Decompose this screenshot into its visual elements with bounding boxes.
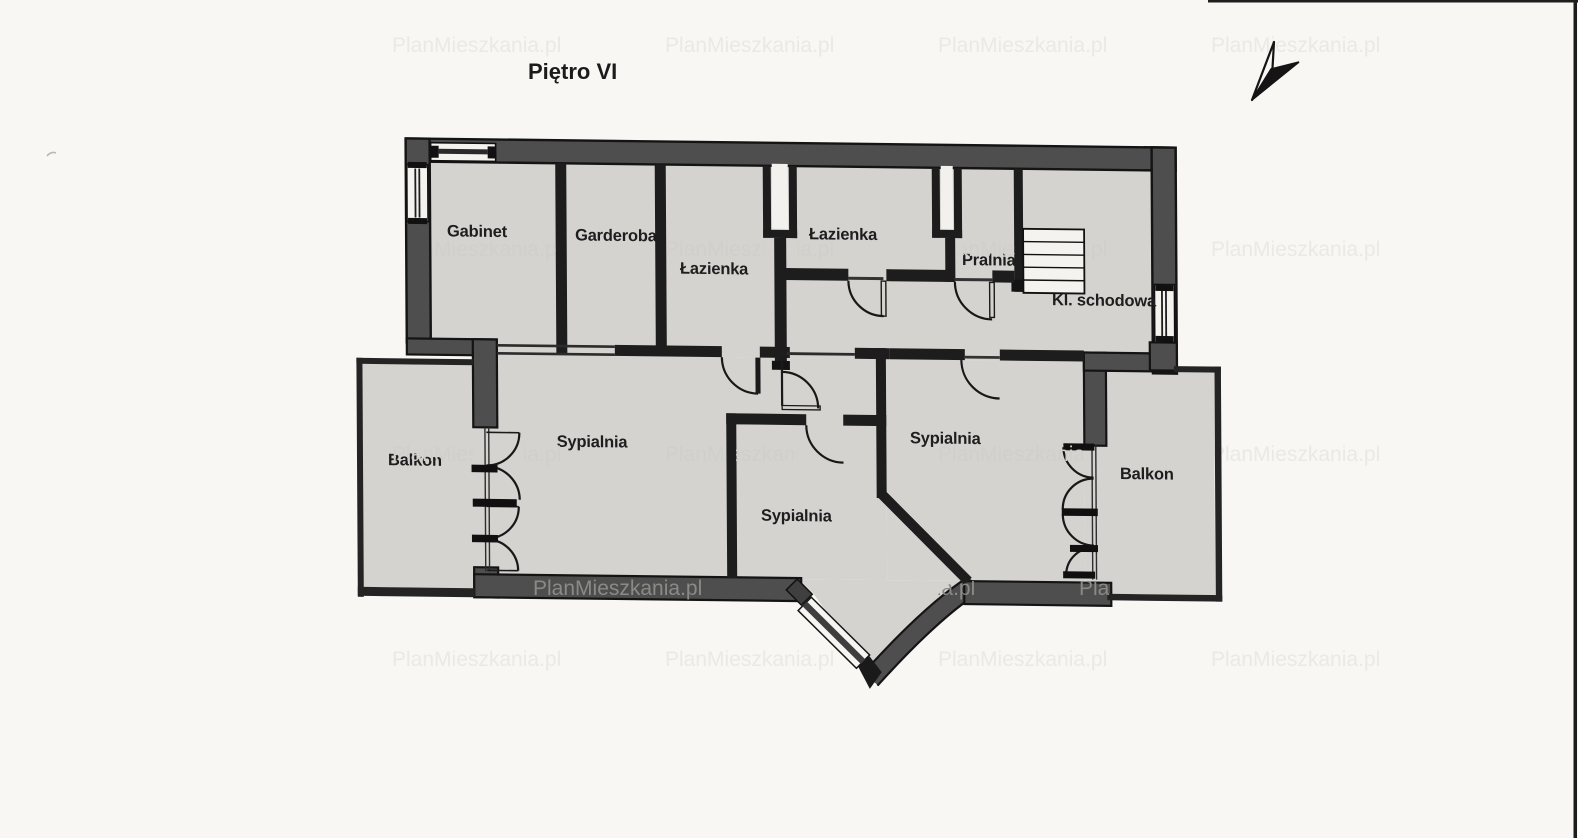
svg-text:PlanMieszkania.pl: PlanMieszkania.pl bbox=[665, 648, 834, 671]
svg-text:PlanMieszkania.pl: PlanMieszkania.pl bbox=[1211, 238, 1380, 261]
svg-text:PlanMieszkania.pl: PlanMieszkania.pl bbox=[533, 577, 702, 600]
svg-text:PlanMieszkania.pl: PlanMieszkania.pl bbox=[938, 648, 1107, 671]
svg-text:PlanMieszkania.pl: PlanMieszkania.pl bbox=[1211, 34, 1380, 57]
svg-text:Garderoba: Garderoba bbox=[575, 226, 658, 245]
svg-text:Sypialnia: Sypialnia bbox=[557, 433, 629, 452]
svg-text:Kl. schodowa: Kl. schodowa bbox=[1052, 291, 1157, 310]
svg-text:PlanMieszkania.pl: PlanMieszkania.pl bbox=[938, 443, 1107, 466]
svg-text:PlanMieszkania.pl: PlanMieszkania.pl bbox=[665, 238, 834, 261]
svg-text:PlanMieszkania.pl: PlanMieszkania.pl bbox=[392, 648, 561, 671]
svg-text:PlanMieszkania.pl: PlanMieszkania.pl bbox=[665, 34, 834, 57]
svg-text:Piętro VI: Piętro VI bbox=[528, 59, 617, 84]
svg-text:Sypialnia: Sypialnia bbox=[761, 507, 833, 526]
svg-text:Balkon: Balkon bbox=[1120, 465, 1174, 484]
svg-text:Łazienka: Łazienka bbox=[680, 260, 749, 279]
svg-text:PlanMieszkania.pl: PlanMieszkania.pl bbox=[1211, 648, 1380, 671]
svg-text:PlanMieszkania.pl: PlanMieszkania.pl bbox=[392, 34, 561, 57]
svg-text:PlanMieszkania.pl: PlanMieszkania.pl bbox=[1211, 443, 1380, 466]
svg-text:PlanMieszkania.pl: PlanMieszkania.pl bbox=[938, 34, 1107, 57]
